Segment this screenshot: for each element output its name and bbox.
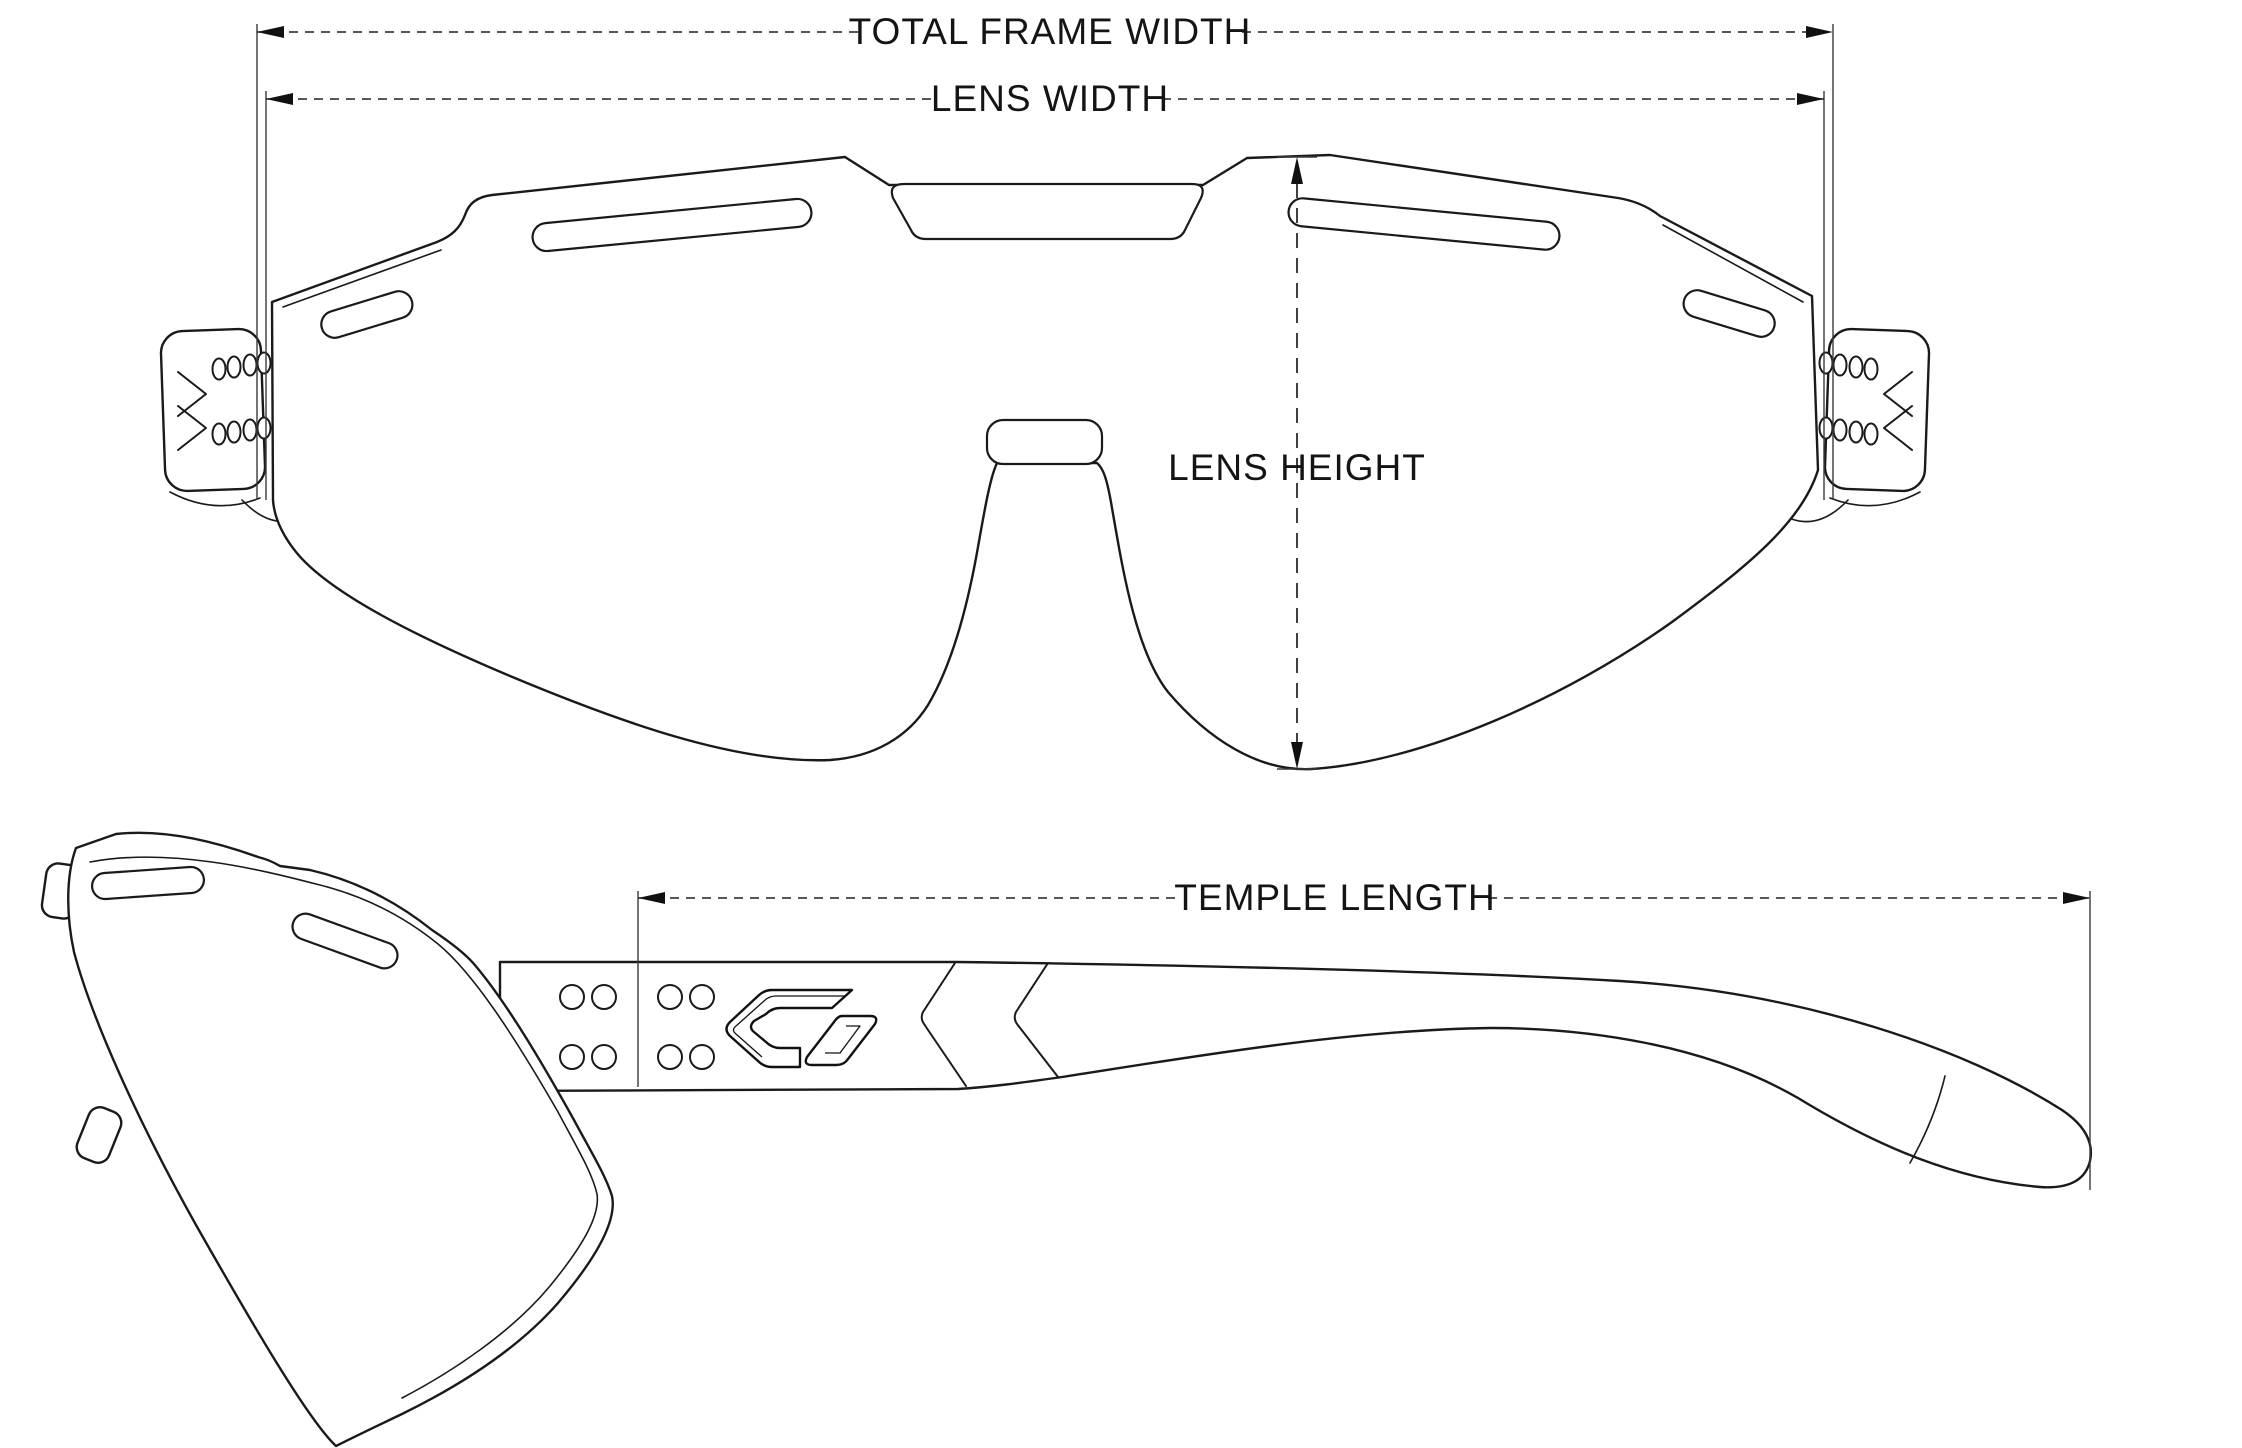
side-lens-tab-lower [73,1104,125,1167]
arrowhead-right-icon [1806,26,1833,38]
arrowhead-left-icon [638,892,665,904]
side-view [40,833,2090,1446]
lens-height-label: LENS HEIGHT [1168,447,1426,488]
nose-pad [987,420,1102,464]
arrowhead-right-icon [2063,892,2090,904]
front-view [160,155,1930,769]
temple-arm-outline [500,962,2091,1187]
hinge-plate-right [1824,328,1930,491]
sunglasses-dimension-diagram: TOTAL FRAME WIDTH LENS WIDTH LENS HEIGHT… [0,0,2242,1448]
lens-width-label: LENS WIDTH [931,78,1169,119]
total-frame-width-label: TOTAL FRAME WIDTH [849,11,1252,52]
arrowhead-left-icon [266,93,293,105]
arrowhead-left-icon [257,26,284,38]
arrowhead-right-icon [1797,93,1824,105]
technical-drawing-canvas: TOTAL FRAME WIDTH LENS WIDTH LENS HEIGHT… [0,0,2242,1448]
temple-length-label: TEMPLE LENGTH [1174,877,1495,918]
center-brow-vent [892,184,1203,239]
hinge-plate-left [160,328,266,491]
